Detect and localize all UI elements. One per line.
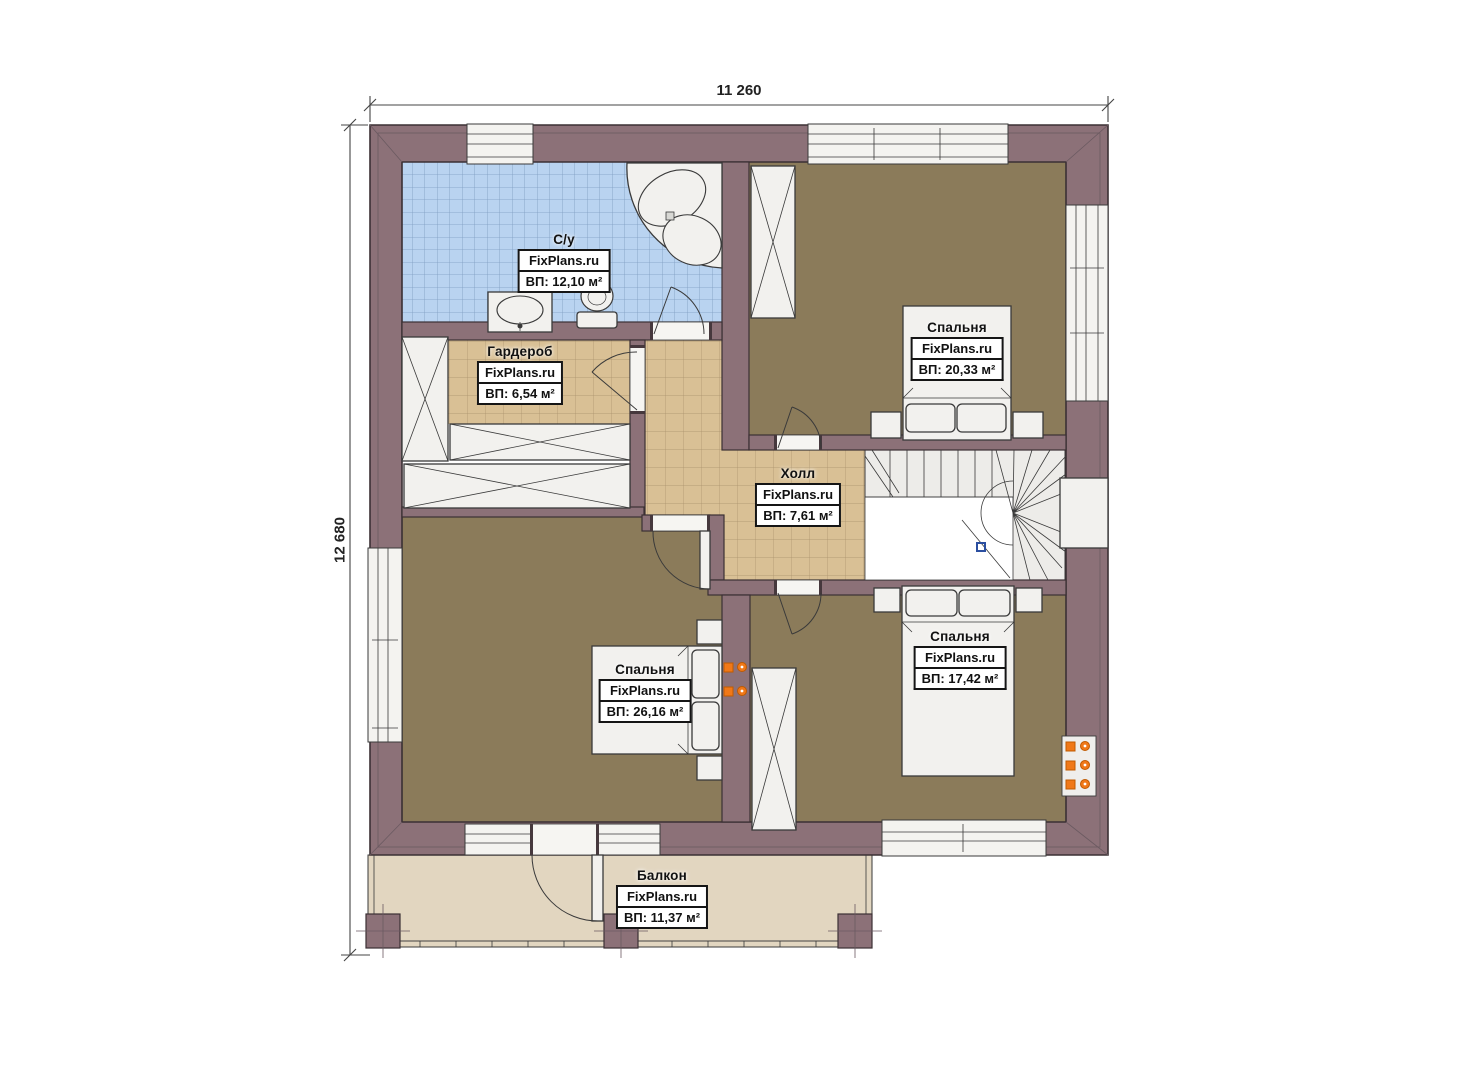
- window-top-bedroom: [808, 124, 1008, 164]
- corridor-floor: [645, 340, 722, 515]
- wall-central-lower: [722, 595, 750, 822]
- room-label-wardrobe: Гардероб FixPlans.ru ВП: 6,54 м²: [477, 344, 563, 405]
- room-area-balcony: ВП: 11,37 м²: [616, 908, 708, 929]
- room-area-bathroom: ВП: 12,10 м²: [518, 272, 611, 293]
- room-label-hall: Холл FixPlans.ru ВП: 7,61 м²: [755, 466, 841, 527]
- floor-plan-page: 11 260 12 680 С/у FixPlans.ru ВП: 12,10 …: [0, 0, 1473, 1080]
- balcony-window-right: [598, 824, 660, 855]
- balcony-window-left: [465, 824, 532, 855]
- room-area-wardrobe: ВП: 6,54 м²: [477, 384, 563, 405]
- room-name-bedroom-left: Спальня: [599, 662, 692, 677]
- room-area-bedroom-left: ВП: 26,16 м²: [599, 702, 692, 723]
- pillow: [959, 590, 1010, 616]
- pillow: [692, 650, 719, 698]
- brand-label: FixPlans.ru: [911, 337, 1004, 360]
- nightstand: [1013, 412, 1043, 438]
- room-area-bedroom-bottom-right: ВП: 17,42 м²: [914, 669, 1007, 690]
- room-label-balcony: Балкон FixPlans.ru ВП: 11,37 м²: [616, 868, 708, 929]
- nightstand: [697, 756, 722, 780]
- wall-central-upper: [722, 162, 749, 450]
- wardrobe-closet-mid: [450, 424, 630, 460]
- sink: [488, 292, 552, 332]
- room-label-bedroom-top-right: Спальня FixPlans.ru ВП: 20,33 м²: [911, 320, 1004, 381]
- stairwell-void: [865, 497, 1013, 580]
- pillow: [692, 702, 719, 750]
- dimension-top: [364, 96, 1114, 122]
- brand-label: FixPlans.ru: [599, 679, 692, 702]
- room-label-bedroom-left: Спальня FixPlans.ru ВП: 26,16 м²: [599, 662, 692, 723]
- room-area-hall: ВП: 7,61 м²: [755, 506, 841, 527]
- brand-label: FixPlans.ru: [477, 361, 563, 384]
- window-left-bedroom: [368, 548, 402, 742]
- window-right-bedroom: [1066, 205, 1108, 401]
- stair-window-niche: [1060, 478, 1108, 548]
- room-name-hall: Холл: [755, 466, 841, 481]
- room-name-bedroom-top-right: Спальня: [911, 320, 1004, 335]
- pillow: [906, 590, 957, 616]
- dimension-top-value: 11 260: [716, 82, 761, 99]
- dimension-left-value: 12 680: [332, 517, 349, 563]
- room-name-bedroom-bottom-right: Спальня: [914, 629, 1007, 644]
- nightstand: [871, 412, 901, 438]
- room-name-balcony: Балкон: [616, 868, 708, 883]
- pillow: [957, 404, 1006, 432]
- room-name-wardrobe: Гардероб: [477, 344, 563, 359]
- room-label-bathroom: С/у FixPlans.ru ВП: 12,10 м²: [518, 232, 611, 293]
- nightstand: [874, 588, 900, 612]
- room-label-bedroom-bottom-right: Спальня FixPlans.ru ВП: 17,42 м²: [914, 629, 1007, 690]
- floor-plan-drawing: [0, 0, 1473, 1080]
- window-bottom-bedroom: [882, 820, 1046, 856]
- nightstand: [1016, 588, 1042, 612]
- pillow: [906, 404, 955, 432]
- closet-bedroom-top-right: [751, 166, 795, 318]
- brand-label: FixPlans.ru: [914, 646, 1007, 669]
- wardrobe-closet-left: [402, 337, 448, 461]
- window-top-bathroom: [467, 124, 533, 164]
- wardrobe-closet-bottom: [404, 464, 630, 508]
- room-name-bathroom: С/у: [518, 232, 611, 247]
- brand-label: FixPlans.ru: [518, 249, 611, 272]
- brand-label: FixPlans.ru: [755, 483, 841, 506]
- closet-bedroom-bottom-right: [752, 668, 796, 830]
- bathtub-drain: [666, 212, 674, 220]
- nightstand: [697, 620, 722, 644]
- brand-label: FixPlans.ru: [616, 885, 708, 908]
- room-area-bedroom-top-right: ВП: 20,33 м²: [911, 360, 1004, 381]
